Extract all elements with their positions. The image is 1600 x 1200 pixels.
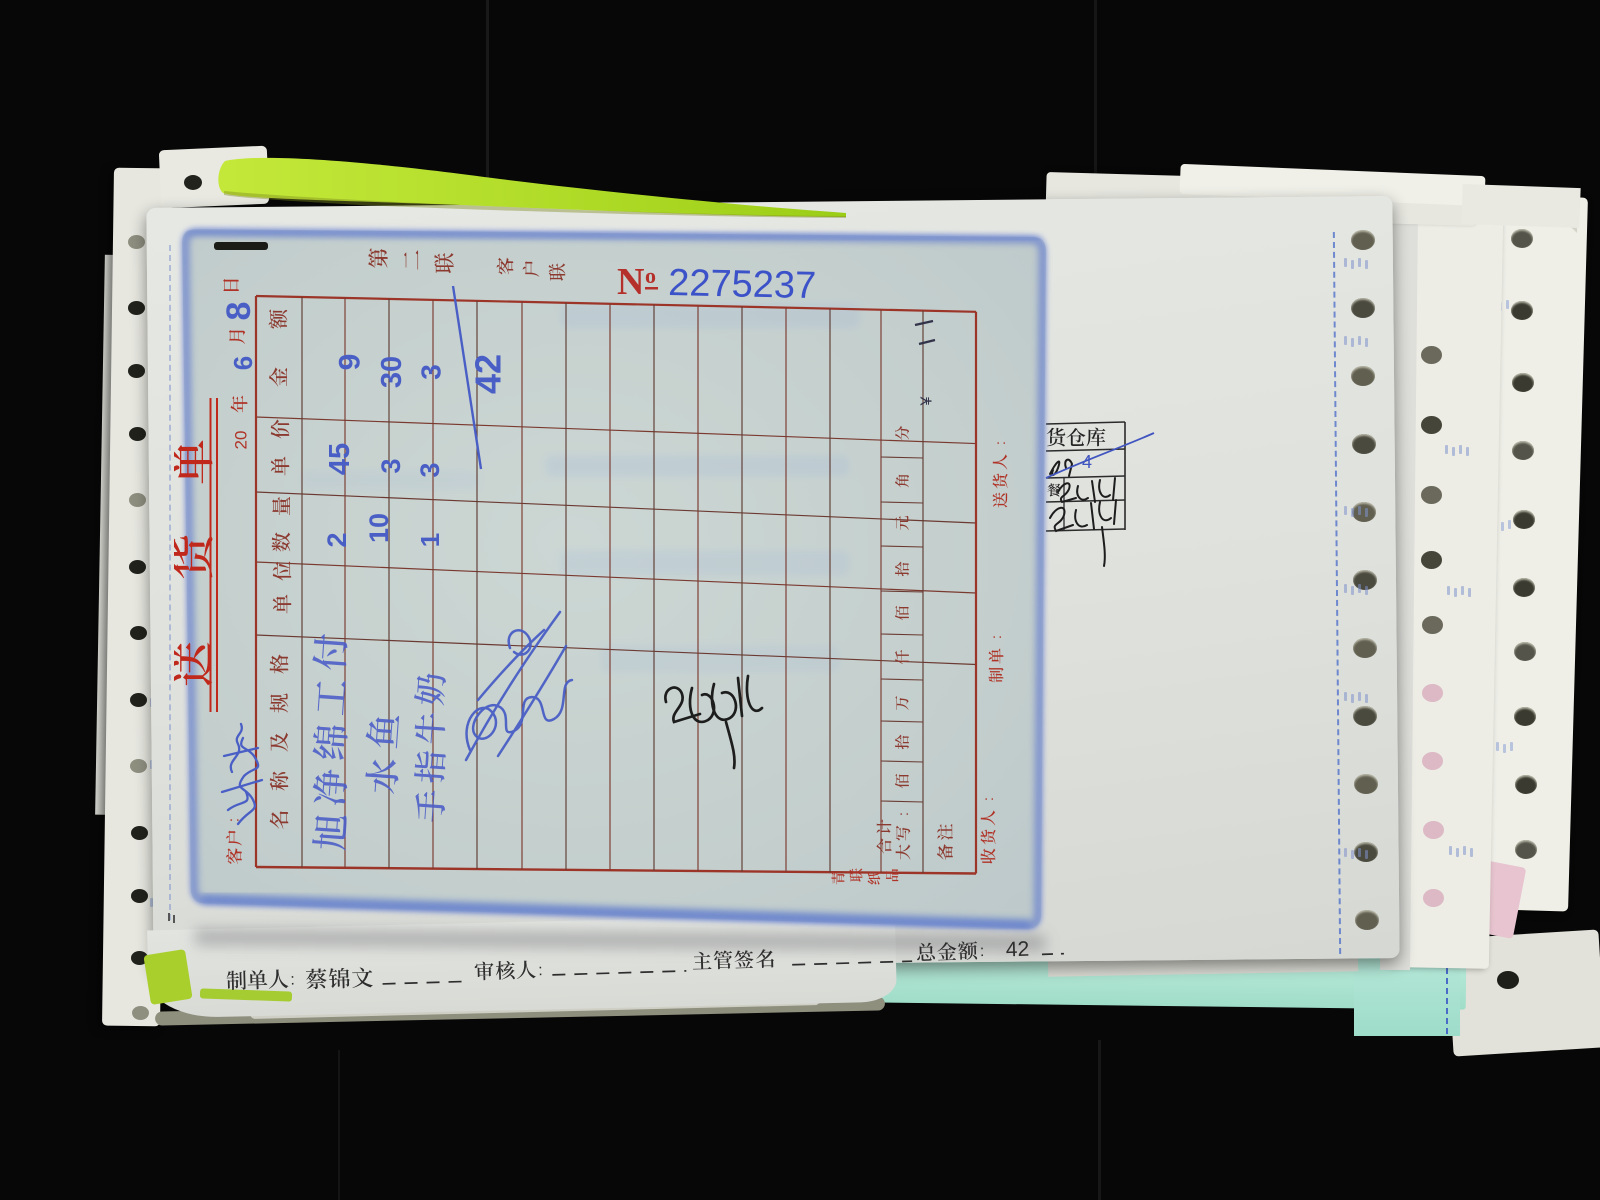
svg-text:o: o bbox=[645, 263, 656, 288]
svg-text:9: 9 bbox=[334, 354, 367, 371]
svg-text:10: 10 bbox=[364, 513, 394, 543]
svg-text:¥: ¥ bbox=[919, 396, 936, 406]
svg-text::: : bbox=[895, 812, 911, 816]
svg-text::: : bbox=[980, 797, 996, 801]
svg-text:N: N bbox=[617, 261, 644, 303]
svg-text:1: 1 bbox=[415, 533, 445, 547]
svg-text:2: 2 bbox=[322, 532, 352, 547]
svg-text:45: 45 bbox=[324, 443, 356, 475]
svg-text:6: 6 bbox=[228, 356, 258, 370]
svg-text:3: 3 bbox=[416, 364, 447, 380]
svg-text::: : bbox=[538, 962, 543, 979]
svg-text::: : bbox=[988, 635, 1004, 639]
svg-text:4: 4 bbox=[1082, 452, 1092, 472]
svg-text:3: 3 bbox=[415, 462, 445, 477]
svg-text:30: 30 bbox=[376, 356, 408, 388]
svg-text:8: 8 bbox=[220, 302, 258, 321]
svg-text:2275237: 2275237 bbox=[668, 262, 817, 307]
svg-text:42: 42 bbox=[1005, 938, 1029, 962]
svg-text:42: 42 bbox=[468, 354, 509, 394]
svg-text:3: 3 bbox=[376, 458, 406, 473]
svg-text::: : bbox=[290, 972, 295, 989]
svg-text::: : bbox=[980, 943, 985, 960]
svg-text::: : bbox=[992, 441, 1008, 445]
svg-text:20: 20 bbox=[232, 431, 251, 450]
